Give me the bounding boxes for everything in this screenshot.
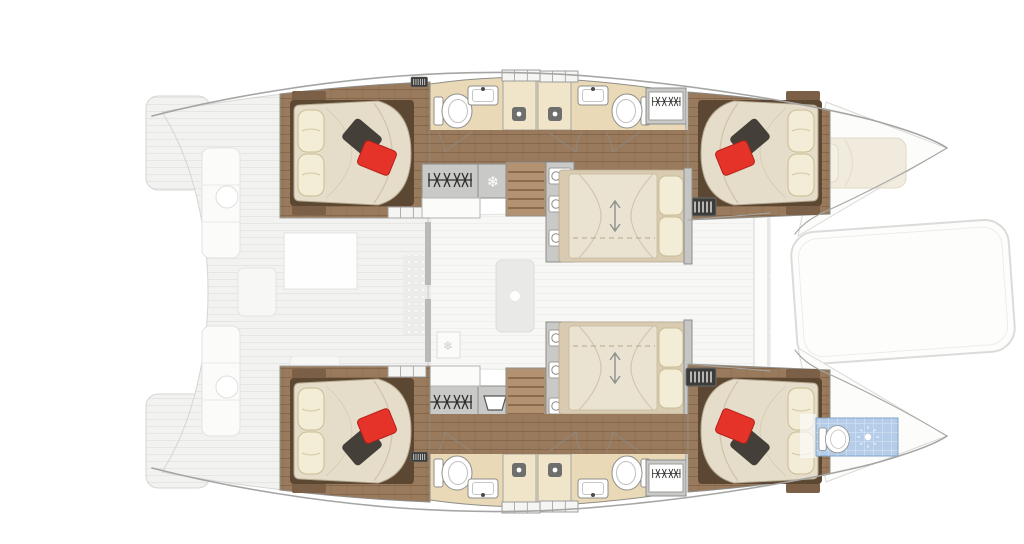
center-berth-starboard (559, 322, 687, 414)
toilet (434, 456, 472, 490)
cockpit-dining-table (284, 233, 357, 289)
stairs-to-port-hull (506, 162, 546, 216)
shower-drain-icon (512, 107, 526, 121)
cockpit-table-starboard (216, 376, 238, 398)
bed-starboard-aft-cabin (290, 369, 414, 493)
galley-sink-basin-icon (484, 396, 506, 410)
fridge-snowflake-icon: ❄ (487, 173, 500, 191)
deck-hatch (411, 77, 428, 87)
toilet (612, 94, 650, 128)
sink (578, 86, 608, 105)
snowflake-icon: ❄ (443, 339, 453, 353)
bed-port-forward-cabin (698, 91, 822, 215)
shower-drain-icon (548, 463, 562, 477)
shower-stall (538, 79, 571, 130)
center-berth-port (559, 170, 687, 262)
bed-port-aft-cabin (290, 91, 414, 215)
starboard-corridor (430, 414, 688, 454)
stairs-to-starboard-hull (506, 368, 546, 422)
hull-window (388, 207, 426, 218)
shower-stall (503, 454, 536, 505)
port-bathroom (430, 70, 686, 132)
berth-partition-wall (684, 168, 692, 264)
saloon-forward-window-wall (754, 210, 768, 372)
shower-drain-icon (548, 107, 562, 121)
cockpit-center-seat (238, 268, 276, 316)
toilet (434, 94, 472, 128)
icemaker-box: ❄ (437, 332, 460, 358)
bow-wet-room (800, 414, 898, 458)
cockpit-table-port (216, 186, 238, 208)
hull-window (540, 71, 578, 82)
sink (578, 479, 608, 498)
companionway-steps (686, 368, 716, 386)
catamaran-floorplan: ❄ (0, 0, 1024, 544)
sink (468, 86, 498, 105)
deck-hatch (411, 452, 428, 462)
shower-stall (503, 79, 536, 130)
foredeck-lounge (790, 218, 1017, 365)
toilet (612, 456, 650, 490)
toilet (819, 426, 849, 453)
wardrobe-hangers-locker (646, 460, 686, 496)
galley-counter (422, 198, 480, 218)
galley-counter (422, 366, 480, 386)
hull-window (388, 366, 426, 377)
hull-window (502, 70, 540, 81)
sink (468, 479, 498, 498)
wardrobe-hangers-locker (646, 88, 686, 124)
starboard-bathroom (430, 452, 686, 513)
shower-drain-icon (512, 463, 526, 477)
shower-stall (538, 454, 571, 505)
